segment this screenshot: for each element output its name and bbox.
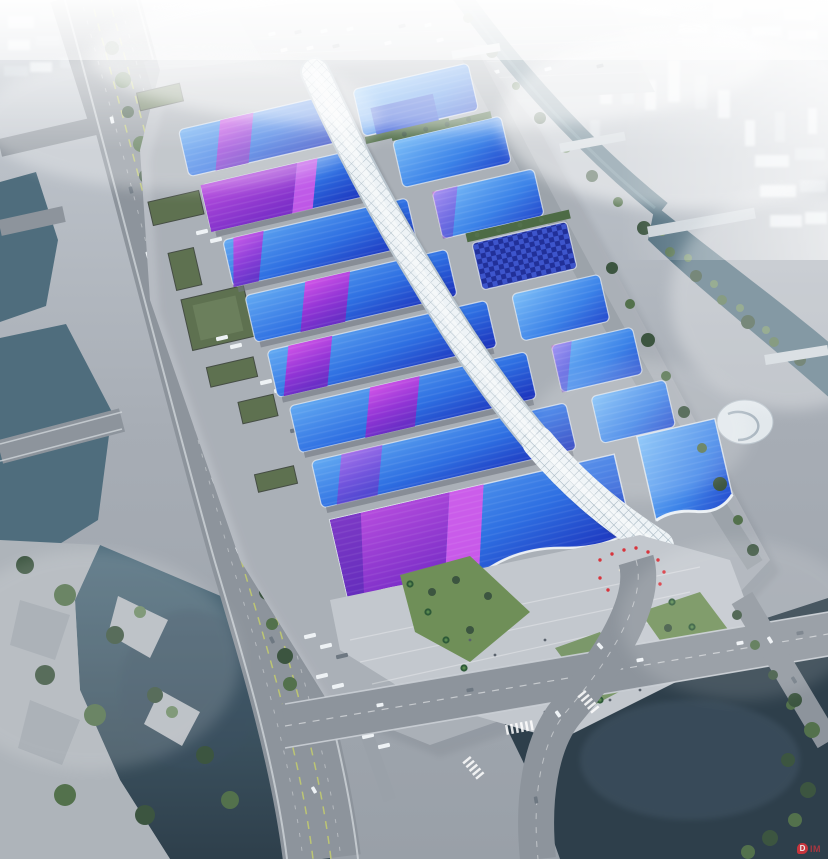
watermark-text: IM xyxy=(810,844,821,854)
watermark-logo-icon: D xyxy=(797,843,808,854)
watermark: D IM xyxy=(797,843,821,854)
scene-canvas xyxy=(0,0,828,859)
aerial-rendering: D IM xyxy=(0,0,828,859)
